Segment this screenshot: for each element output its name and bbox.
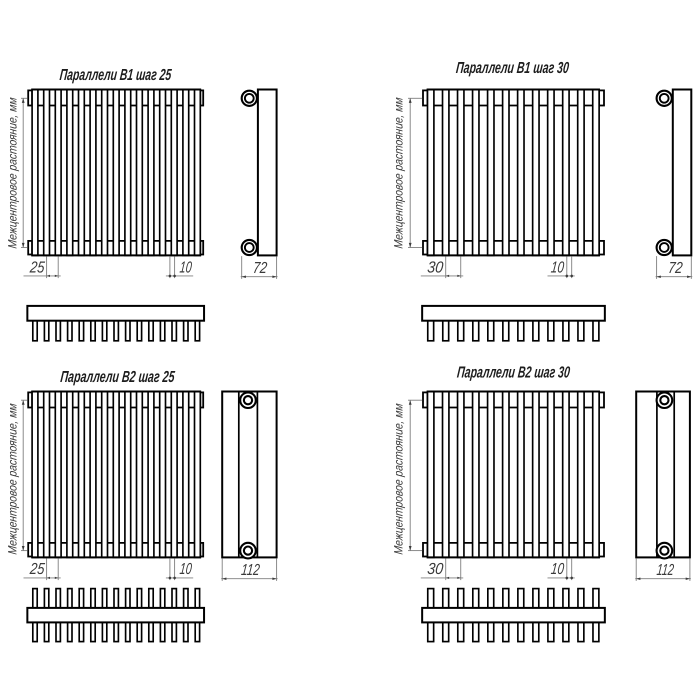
svg-text:112: 112 (240, 561, 260, 579)
svg-text:72: 72 (667, 259, 683, 277)
svg-text:Параллели В1 шаг 30: Параллели В1 шаг 30 (455, 59, 570, 77)
svg-text:72: 72 (252, 259, 268, 277)
svg-text:30: 30 (426, 258, 444, 276)
svg-text:10: 10 (550, 560, 565, 578)
svg-text:10: 10 (550, 258, 565, 276)
svg-text:Межцентровое растояние, мм: Межцентровое растояние, мм (391, 402, 405, 555)
svg-text:25: 25 (28, 560, 45, 578)
svg-text:10: 10 (179, 560, 193, 578)
svg-text:Межцентровое растояние, мм: Межцентровое растояние, мм (6, 402, 20, 555)
svg-text:Параллели В1 шаг 25: Параллели В1 шаг 25 (59, 66, 173, 84)
svg-text:Параллели В2 шаг 30: Параллели В2 шаг 30 (456, 364, 571, 382)
svg-text:Параллели В2 шаг 25: Параллели В2 шаг 25 (60, 368, 177, 386)
svg-text:112: 112 (656, 561, 675, 579)
svg-text:30: 30 (426, 560, 444, 578)
svg-text:25: 25 (28, 258, 45, 276)
svg-text:10: 10 (179, 258, 193, 276)
svg-text:Межцентровое растояние, мм: Межцентровое растояние, мм (6, 96, 20, 249)
svg-text:Межцентровое растояние, мм: Межцентровое растояние, мм (391, 96, 405, 249)
